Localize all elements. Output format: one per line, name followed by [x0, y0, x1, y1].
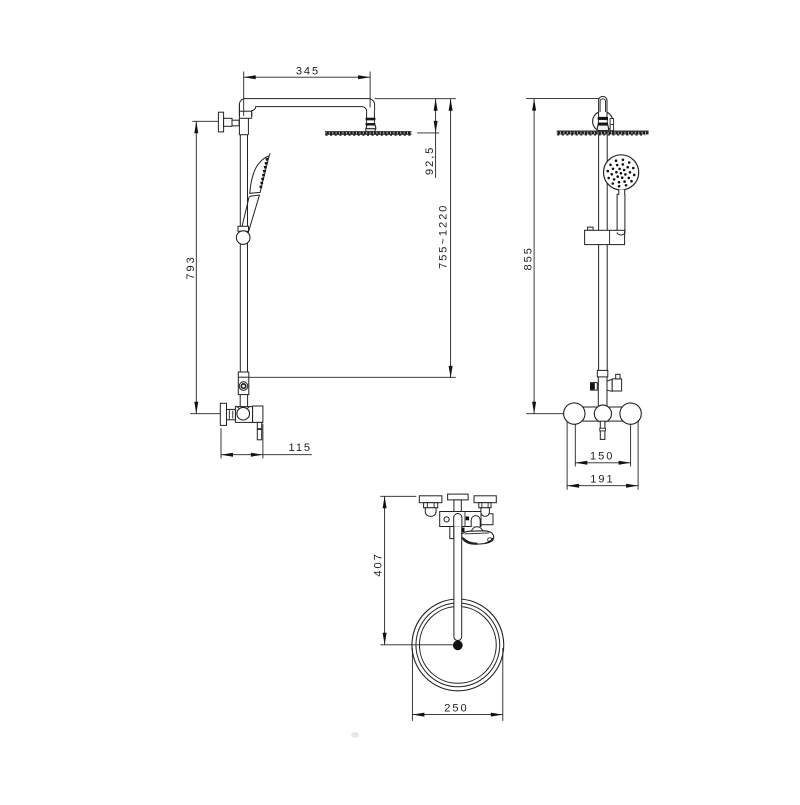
svg-text:755~1220: 755~1220	[437, 204, 449, 269]
svg-text:92,5: 92,5	[424, 146, 436, 175]
svg-text:855: 855	[523, 246, 535, 270]
svg-text:793: 793	[185, 255, 197, 279]
svg-text:115: 115	[289, 442, 313, 454]
svg-text:150: 150	[590, 451, 614, 463]
svg-text:191: 191	[590, 473, 614, 485]
svg-text:250: 250	[444, 702, 468, 714]
svg-text:407: 407	[372, 552, 384, 576]
svg-text:345: 345	[296, 65, 320, 77]
